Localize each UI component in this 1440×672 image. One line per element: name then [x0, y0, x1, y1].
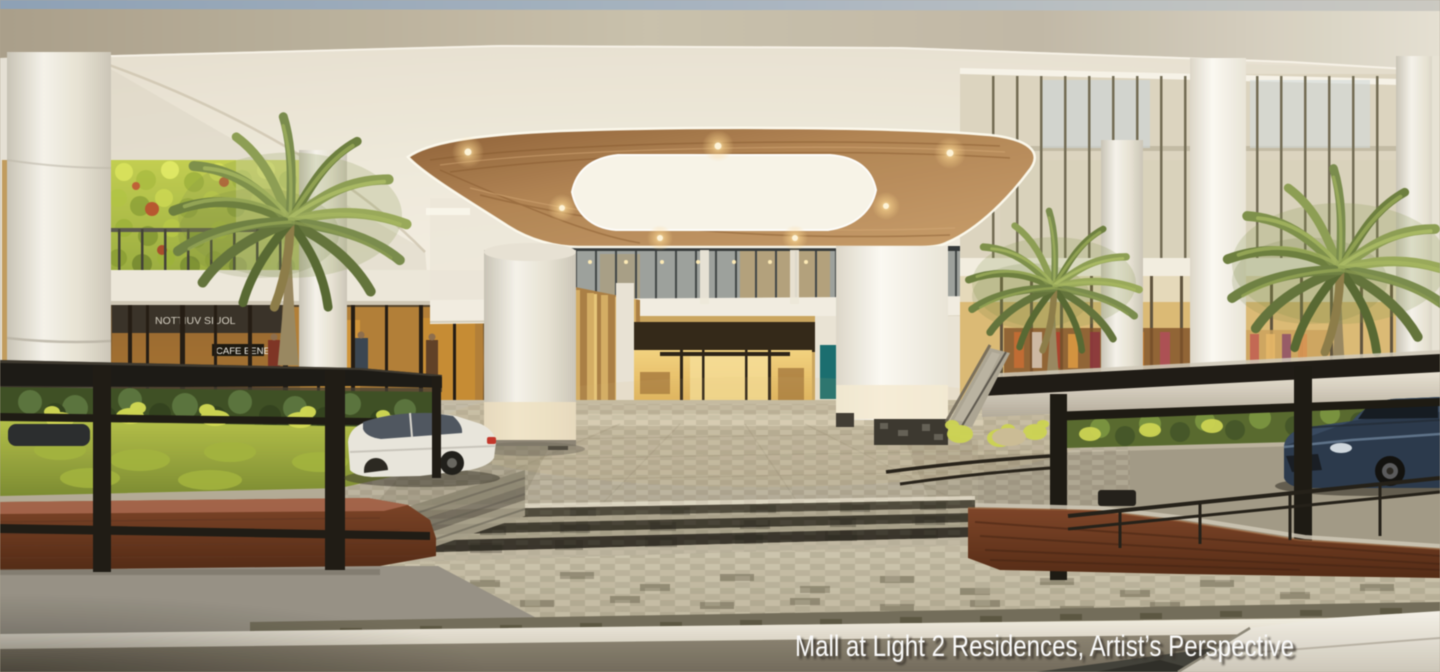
- svg-text:Mall at Light 2 Residences, Ar: Mall at Light 2 Residences, Artist’s Per…: [795, 630, 1294, 663]
